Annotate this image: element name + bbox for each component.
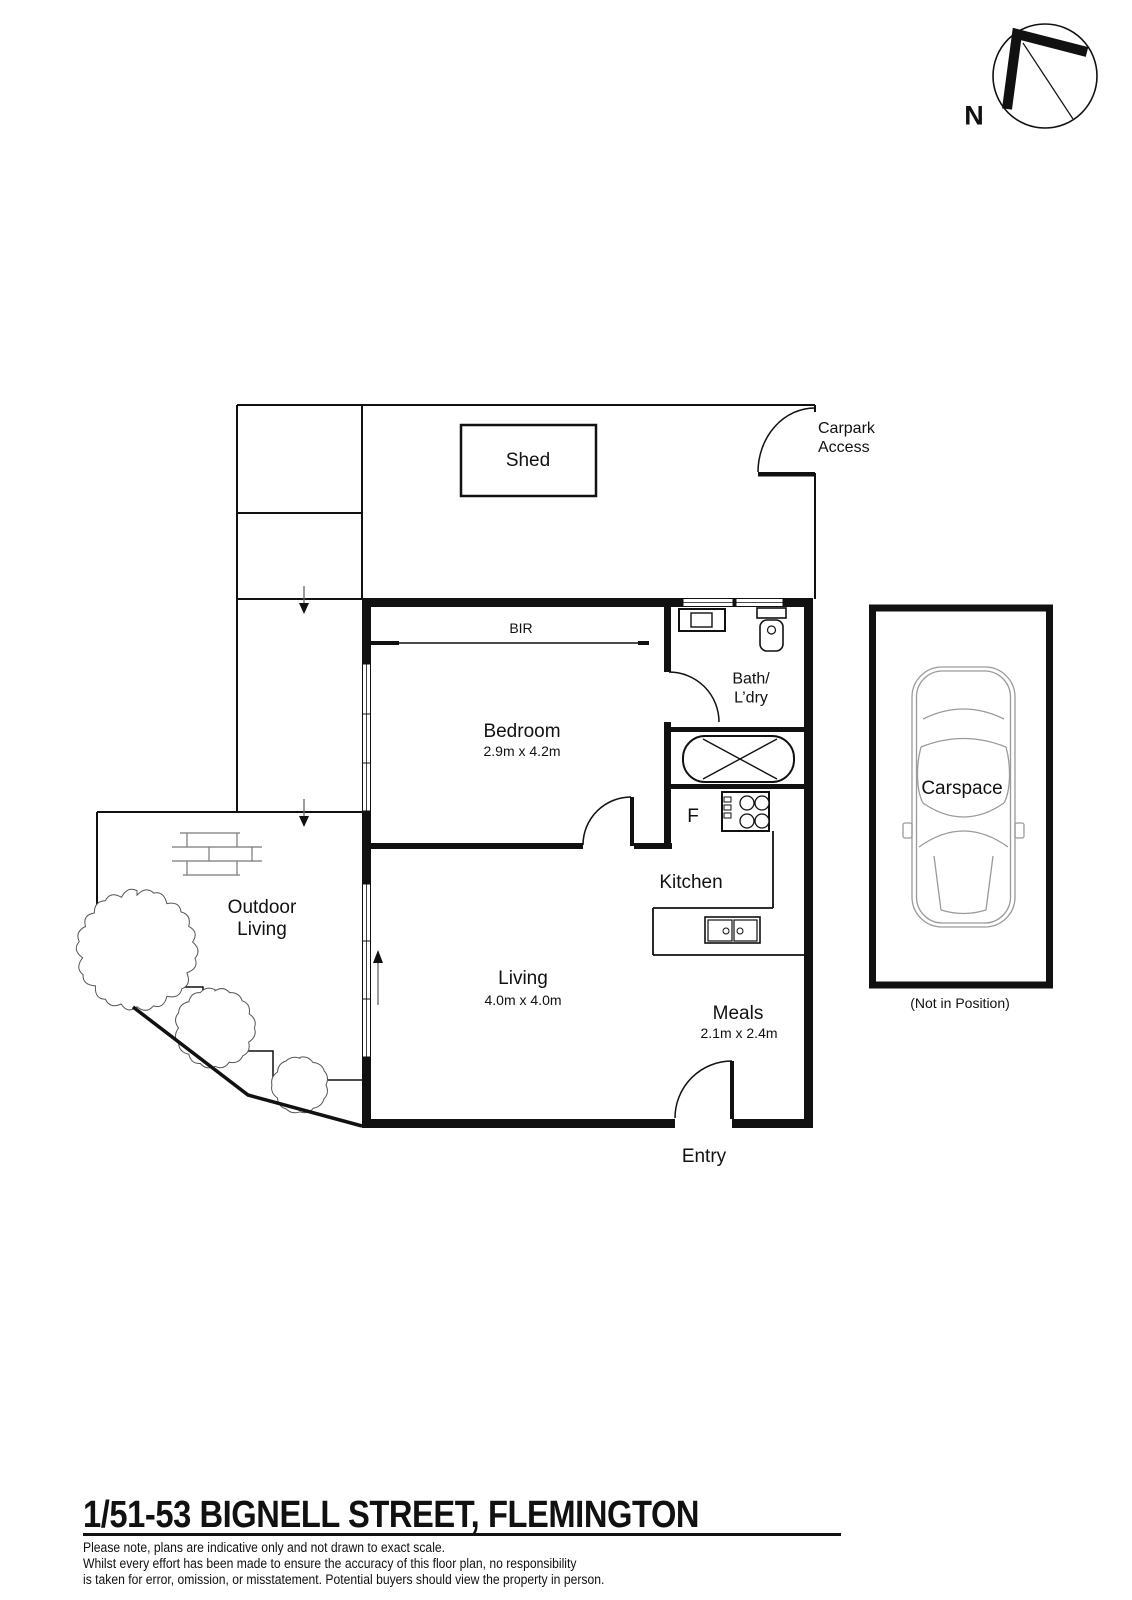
toilet [757, 608, 786, 651]
outdoor-living-label: Outdoor Living [228, 897, 297, 941]
tree-medium [176, 988, 256, 1068]
paving-bricks [172, 833, 262, 875]
bedroom-label: Bedroom [483, 721, 560, 743]
bathtub [683, 736, 794, 782]
disclaimer-line: is taken for error, omission, or misstat… [83, 1572, 604, 1588]
kitchen-sink [705, 917, 760, 943]
entry-label: Entry [682, 1146, 726, 1168]
address-title: 1/51-53 BIGNELL STREET, FLEMINGTON [83, 1494, 699, 1537]
carpark-gate [758, 408, 815, 477]
bath-windows [683, 599, 783, 607]
bedroom-door-arc [583, 797, 631, 845]
bir-label: BIR [509, 620, 532, 636]
bath-door-arc [669, 672, 719, 722]
laundry-trough [679, 609, 725, 631]
disclaimer: Please note, plans are indicative only a… [83, 1540, 604, 1587]
fridge-label: F [687, 806, 699, 828]
kitchen-label: Kitchen [659, 872, 722, 894]
floorplan-page: N Carpark Access Shed BIR Bath/ L’dry Be… [0, 0, 1132, 1600]
disclaimer-line: Whilst every effort has been made to ens… [83, 1556, 604, 1572]
meals-label: Meals [713, 1003, 764, 1025]
site-boundary [97, 405, 815, 910]
shed-label: Shed [506, 450, 550, 472]
compass-graphic [993, 24, 1097, 128]
living-label: Living [498, 968, 548, 990]
cooktop [722, 792, 769, 831]
carpark-access-label: Carpark Access [818, 420, 875, 457]
living-dimensions: 4.0m x 4.0m [484, 992, 561, 1008]
bedroom-dimensions: 2.9m x 4.2m [483, 743, 560, 759]
tree-large [76, 889, 198, 1010]
path-arrow-up [373, 950, 383, 1005]
meals-dimensions: 2.1m x 2.4m [700, 1025, 777, 1041]
title-divider [83, 1533, 841, 1536]
disclaimer-line: Please note, plans are indicative only a… [83, 1540, 604, 1556]
carspace-note: (Not in Position) [910, 995, 1010, 1011]
entry-door-arc [675, 1061, 732, 1118]
carspace-label: Carspace [921, 778, 1002, 800]
compass-north-label: N [964, 100, 984, 131]
bath-laundry-label: Bath/ L’dry [732, 670, 769, 707]
